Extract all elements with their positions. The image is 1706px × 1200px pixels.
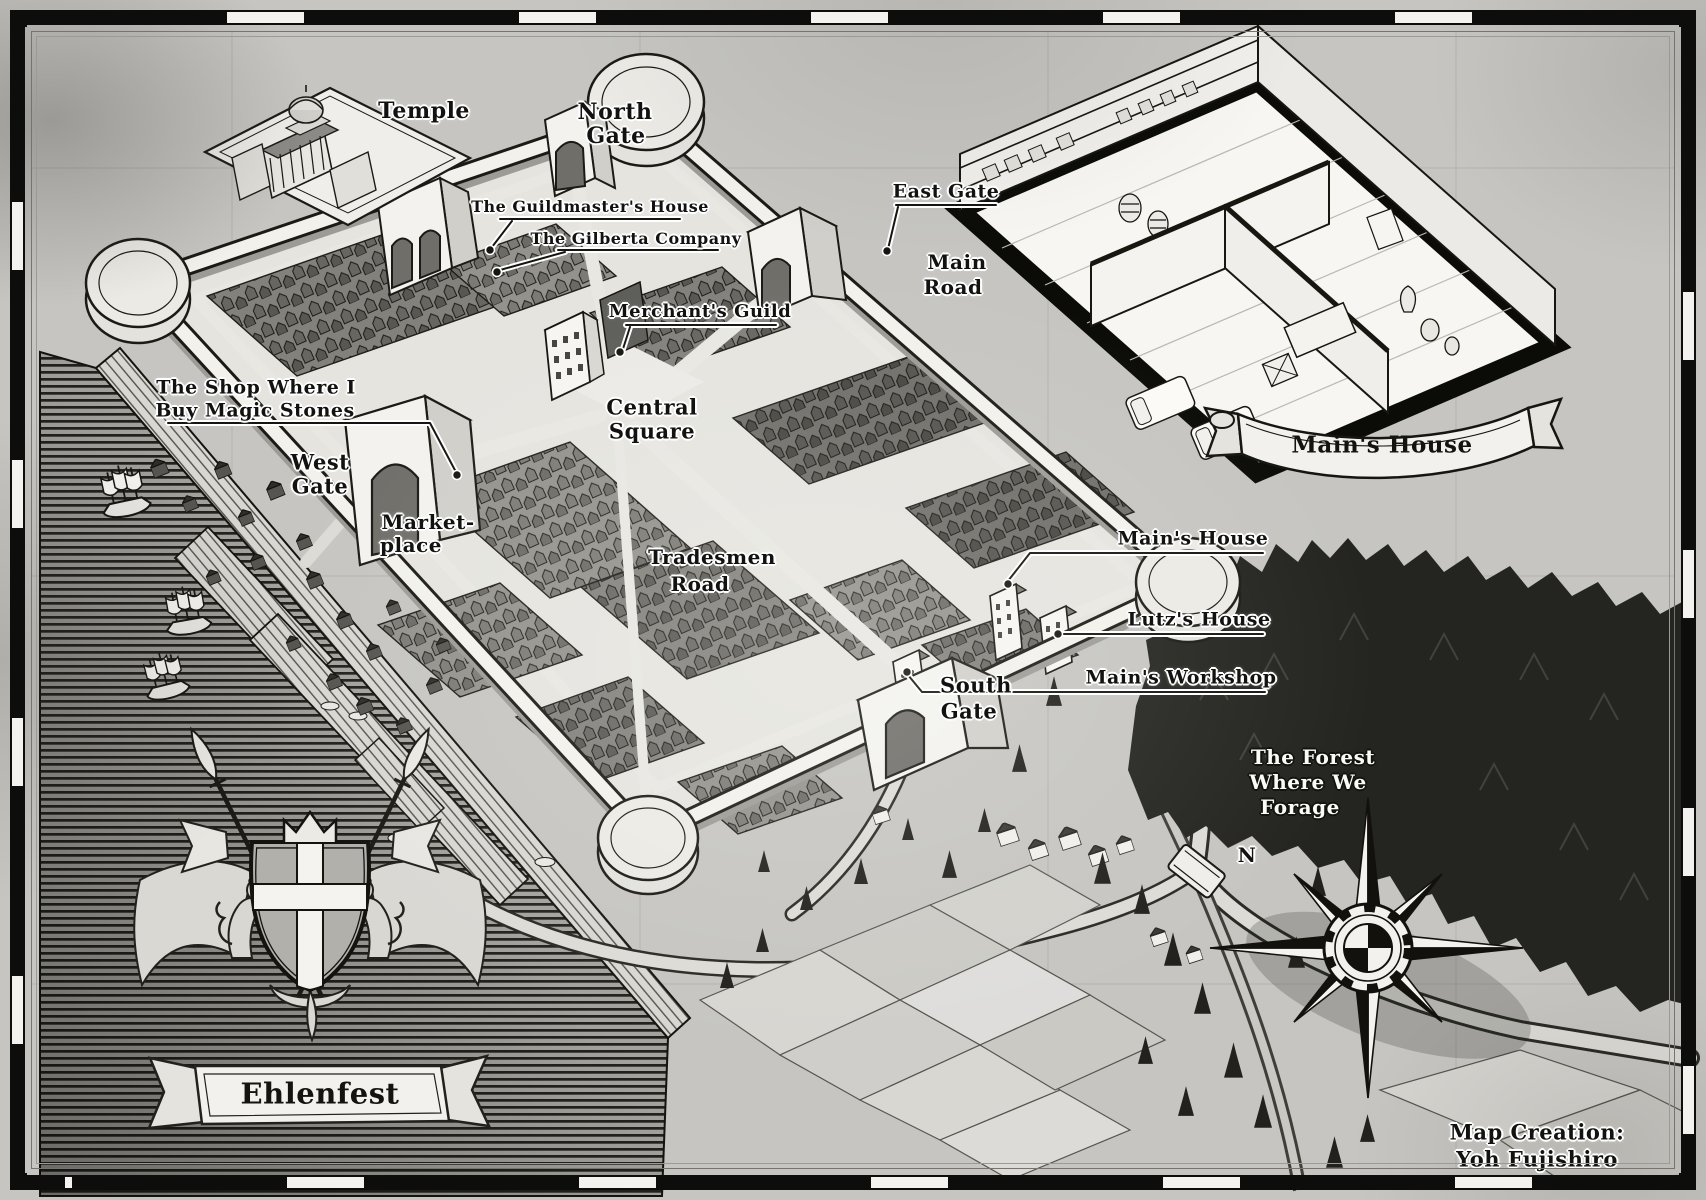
- credit-line-1: Map Creation:: [1450, 1122, 1625, 1143]
- label-tradesmen-road-1: Tradesmen: [648, 547, 776, 567]
- ehlenfest-map: Temple North Gate The Guildmaster's Hous…: [0, 0, 1706, 1200]
- label-merchants-guild: Merchant's Guild: [609, 303, 792, 321]
- label-gilberta-company: The Gilberta Company: [530, 231, 741, 247]
- label-mains-workshop: Main's Workshop: [1085, 669, 1276, 688]
- label-forest-1: The Forest: [1251, 747, 1375, 767]
- label-main-road-2: Road: [924, 277, 983, 297]
- label-lutzs-house: Lutz's House: [1127, 611, 1270, 630]
- label-main-road-1: Main: [927, 252, 986, 272]
- label-guildmasters-house: The Guildmaster's House: [471, 199, 709, 215]
- label-central-square-1: Central: [606, 397, 697, 418]
- frame-top: [10, 10, 1696, 25]
- label-temple: Temple: [378, 100, 470, 122]
- label-forest-3: Forage: [1260, 797, 1340, 817]
- label-south-gate-1: South: [940, 675, 1012, 696]
- label-magic-stones-2: Buy Magic Stones: [155, 402, 354, 421]
- label-forest-2: Where We: [1249, 772, 1367, 792]
- label-marketplace-2: place: [380, 535, 442, 555]
- label-marketplace-1: Market-: [381, 512, 474, 532]
- inset-banner-title: Main's House: [1291, 434, 1472, 457]
- credit-line-2: Yoh Fujishiro: [1456, 1149, 1618, 1170]
- frame-bottom: [10, 1175, 1696, 1190]
- frame-corner-br: [1679, 1173, 1696, 1190]
- label-central-square-2: Square: [609, 421, 695, 442]
- label-east-gate: East Gate: [893, 183, 1000, 202]
- label-south-gate-2: Gate: [941, 701, 998, 722]
- frame-corner-tr: [1679, 10, 1696, 27]
- label-north-gate-2: Gate: [586, 125, 645, 147]
- frame-corner-tl: [10, 10, 27, 27]
- label-west-gate-1: West: [291, 452, 350, 473]
- label-layer: Temple North Gate The Guildmaster's Hous…: [0, 0, 1706, 1200]
- frame-left: [10, 10, 25, 1190]
- compass-north-label: N: [1238, 845, 1257, 865]
- frame-corner-bl: [10, 1173, 27, 1190]
- label-north-gate-1: North: [577, 101, 652, 123]
- frame-right: [1681, 10, 1696, 1190]
- city-name-banner-text: Ehlenfest: [241, 1080, 400, 1109]
- label-magic-stones-1: The Shop Where I: [156, 379, 356, 398]
- label-tradesmen-road-2: Road: [671, 574, 730, 594]
- label-mains-house: Main's House: [1118, 530, 1269, 549]
- label-west-gate-2: Gate: [292, 476, 349, 497]
